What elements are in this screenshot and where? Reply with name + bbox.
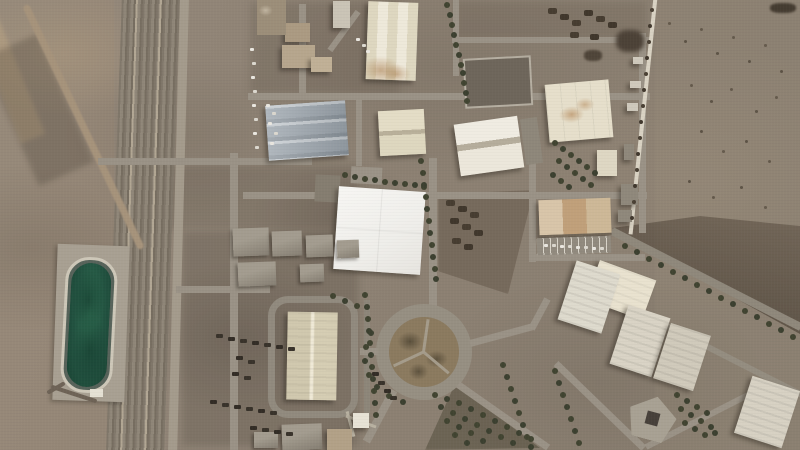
twin-bar-building-east <box>454 116 525 176</box>
road-vertical-treecolumn <box>364 300 370 420</box>
wall-structure-d <box>624 144 634 160</box>
pond-outlet-structure <box>90 389 103 397</box>
wall-structure-a <box>633 57 643 64</box>
wall-structure-b <box>630 81 641 88</box>
debris-blob-corner <box>770 3 796 13</box>
tan-shed-north-a <box>285 23 310 42</box>
service-structure-west-of-hall <box>314 174 340 202</box>
tan-building-south <box>327 429 352 450</box>
road-horizontal-parking <box>531 254 645 261</box>
gray-block-south-a <box>282 423 323 450</box>
road-horizontal-pondlink <box>176 286 270 293</box>
pond-rim <box>59 256 118 395</box>
parking-stalls-east <box>537 236 612 256</box>
debris-blob-wall <box>616 30 644 52</box>
debris-blob-north <box>584 50 602 61</box>
wall-structure-e <box>621 184 638 205</box>
gray-block-b <box>272 230 303 256</box>
desert-scrub-dots <box>0 0 3 3</box>
pond-water <box>66 262 112 388</box>
small-cream-block-east <box>597 150 617 176</box>
gray-block-e <box>238 261 277 286</box>
metal-roof-warehouse <box>265 100 349 160</box>
warehouse-in-loop <box>286 312 338 401</box>
road-stub-west-exit <box>360 348 378 355</box>
road-vertical-midright <box>529 158 536 262</box>
large-white-central-hall <box>333 186 426 275</box>
walled-courtyard-northeast <box>463 55 534 108</box>
tan-shed-north-c <box>311 57 332 72</box>
road-vertical-north-b <box>356 94 362 166</box>
gray-block-c <box>306 235 334 258</box>
gray-block-south-b <box>254 432 278 448</box>
gray-block-f <box>300 264 325 283</box>
small-white-building-north <box>333 1 350 28</box>
tan-building-with-parking <box>538 198 611 237</box>
road-vertical-east-of-hall <box>429 158 437 308</box>
road-vertical-lot <box>230 153 238 450</box>
wall-structure-f <box>618 210 632 222</box>
cream-building-northeast <box>545 79 614 142</box>
wall-structure-c <box>627 103 638 111</box>
yard-structures-north-edge <box>257 0 286 35</box>
satellite-image: Aerial satellite view of a desert indust… <box>0 0 800 450</box>
twin-bar-building-center <box>378 109 426 156</box>
striped-warehouse-north <box>366 1 419 81</box>
small-white-building-south <box>353 413 369 428</box>
service-structure-north-of-hall <box>351 166 383 185</box>
gray-block-a <box>233 227 270 256</box>
gray-block-d <box>337 240 360 259</box>
